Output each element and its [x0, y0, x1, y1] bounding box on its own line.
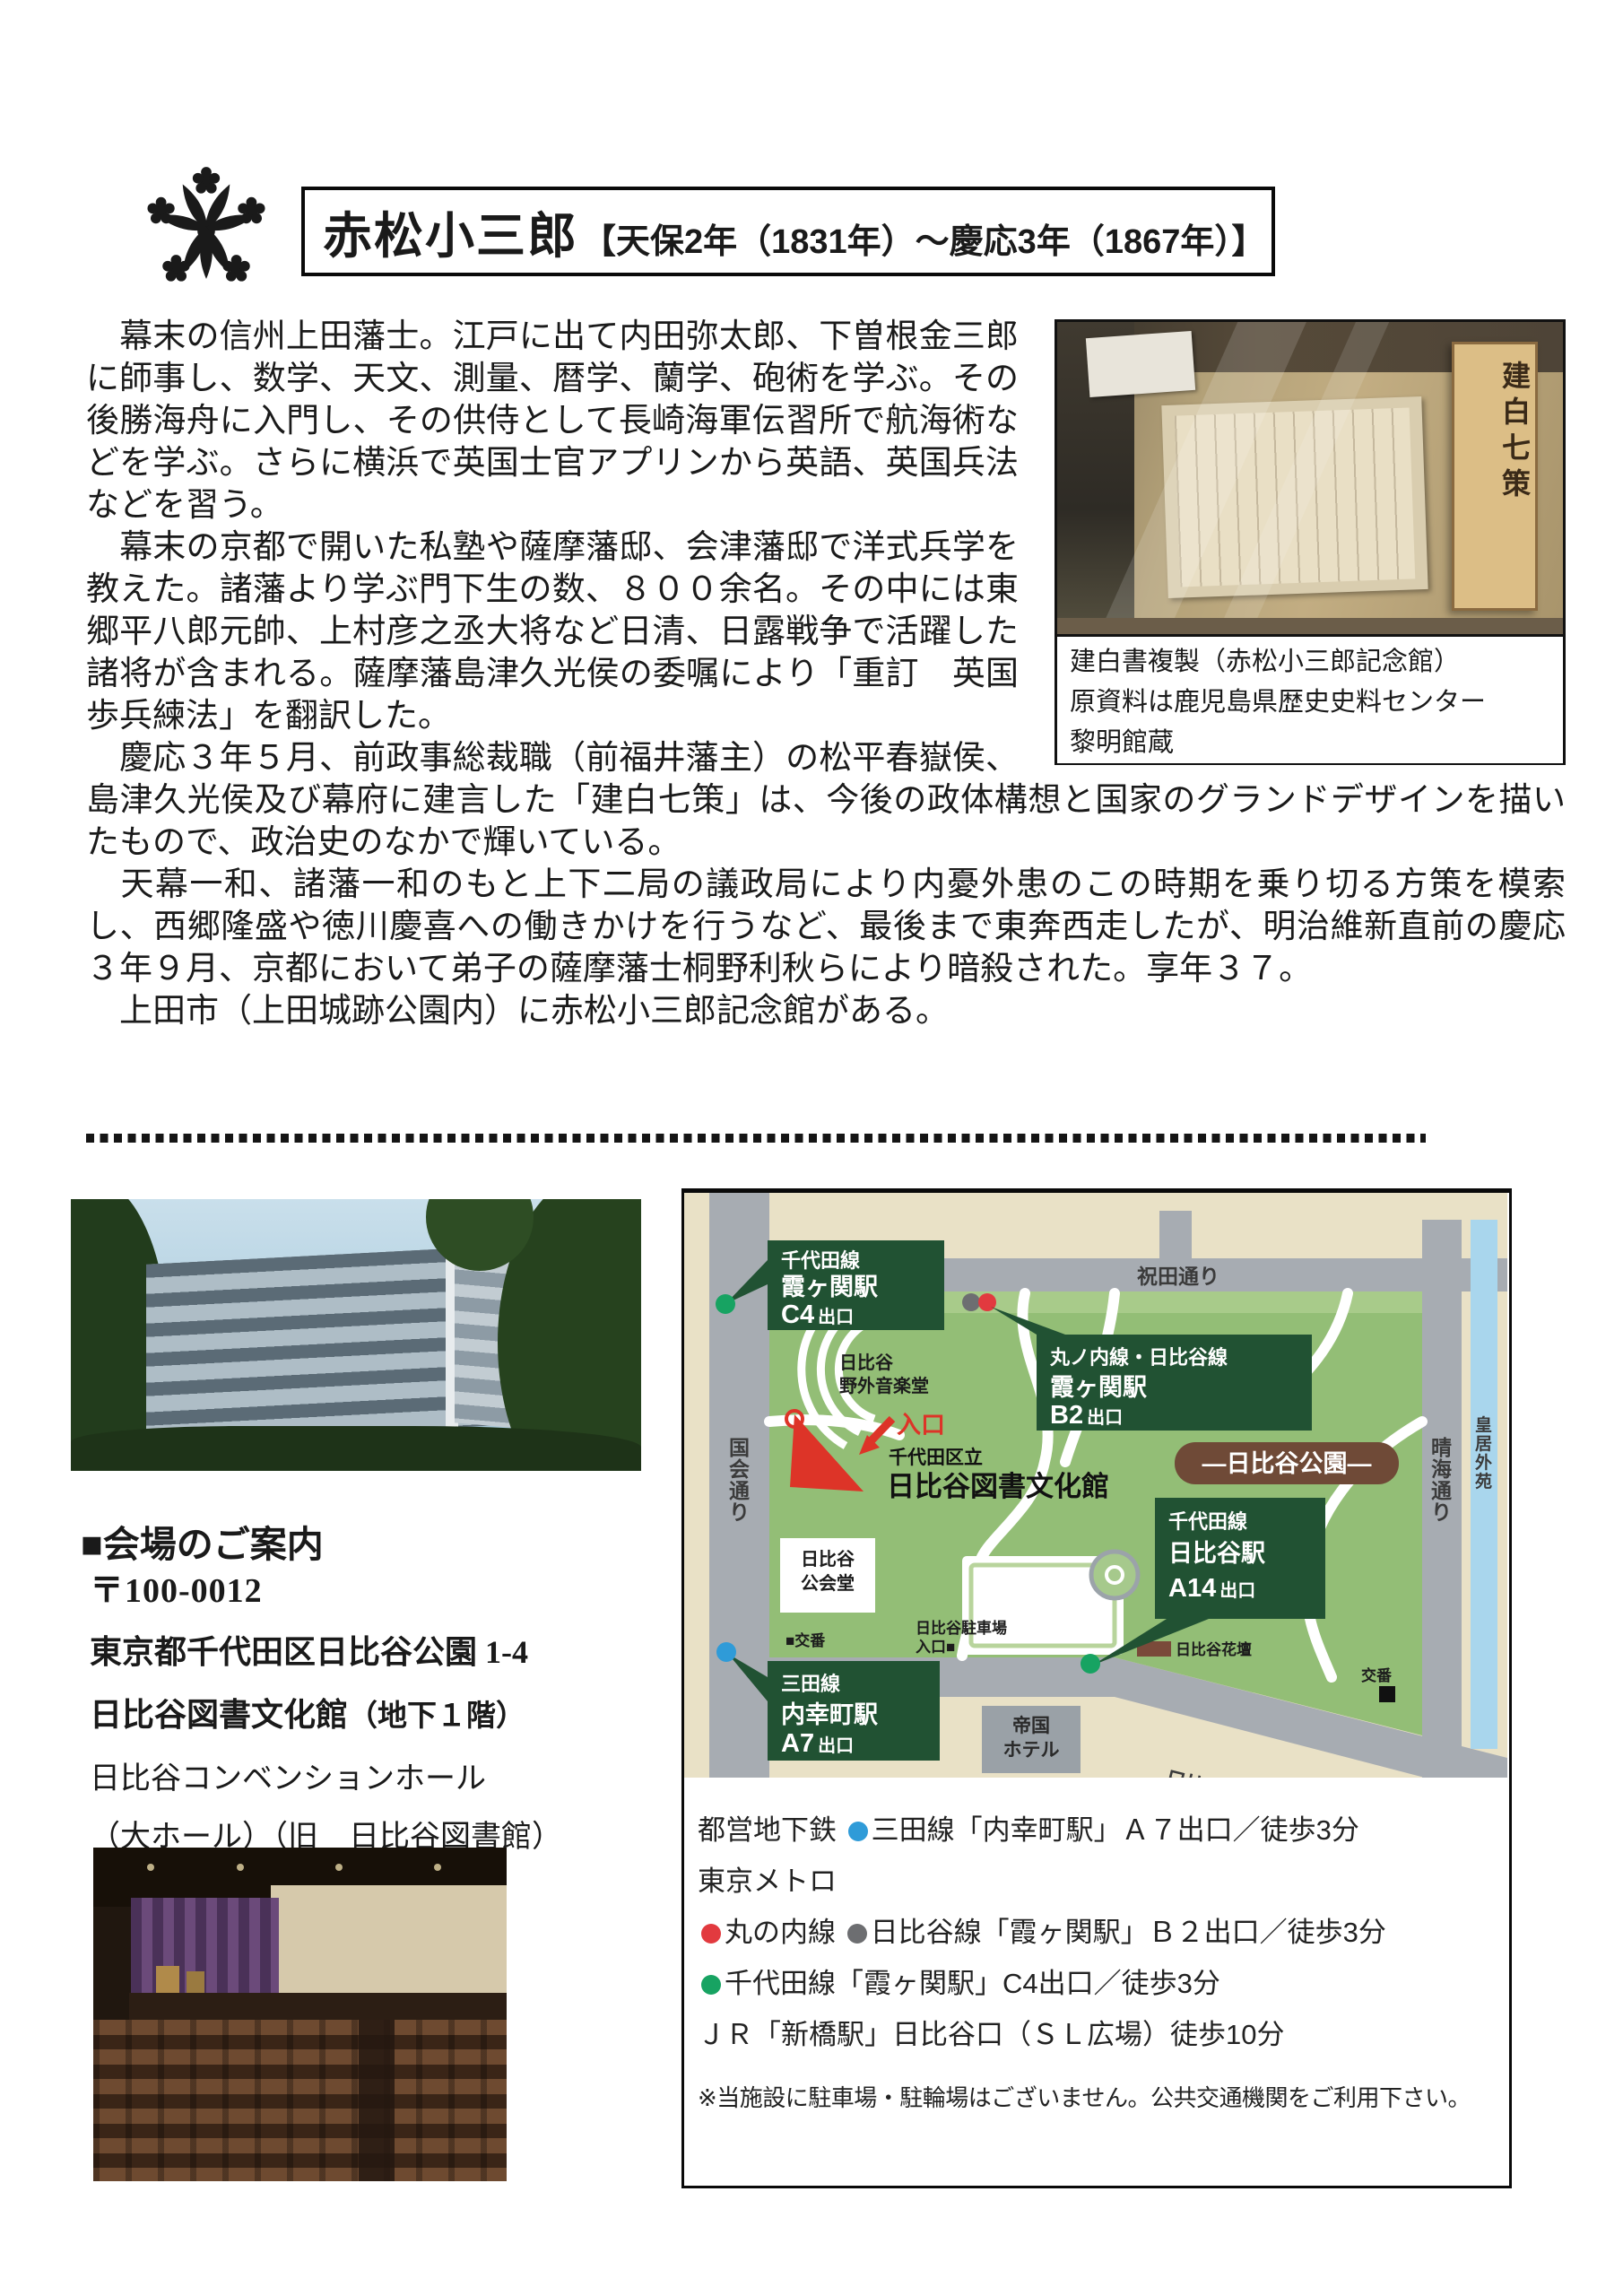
case-ledge	[1057, 618, 1563, 634]
hibiya-line-marker	[962, 1293, 980, 1311]
caption-line: 建白書複製（赤松小三郎記念館）	[1070, 642, 1563, 683]
access-text: 都営地下鉄	[698, 1814, 845, 1846]
library-muni-label: 千代田区立	[889, 1447, 983, 1468]
koban-square-icon	[1379, 1686, 1395, 1702]
access-row: 東京メトロ	[698, 1856, 1497, 1907]
station-label-uchisaiwaicho-a7: 三田線 内幸町駅 A7出口	[768, 1661, 940, 1761]
access-row: ＪＲ「新橋駅」日比谷口（ＳＬ広場）徒歩10分	[698, 2009, 1497, 2060]
title-dates: 【天保2年（1831年）～慶応3年（1867年）】	[582, 213, 1265, 263]
kamon-flower-crest-icon	[143, 161, 269, 296]
kadan-label: 日比谷花壇	[1176, 1640, 1252, 1658]
stage-back-wall	[271, 1885, 507, 2004]
access-row: 千代田線「霞ヶ関駅」C4出口／徒歩3分	[698, 1958, 1497, 2009]
venue-building-name: 日比谷図書文化館	[90, 1697, 348, 1733]
koban-right-label: 交番	[1361, 1666, 1393, 1684]
stage-curtain	[131, 1898, 279, 1998]
street-label-north: 祝田通り	[1137, 1265, 1219, 1288]
plank-title-text: 建白七策	[1454, 361, 1535, 504]
access-row: 丸の内線 日比谷線「霞ヶ関駅」Ｂ２出口／徒歩3分	[698, 1907, 1497, 1958]
parking-label: 日比谷駐車場	[916, 1619, 1007, 1637]
a14-exit-marker	[1081, 1654, 1100, 1674]
access-text: ＪＲ「新橋駅」日比谷口（ＳＬ広場）徒歩10分	[698, 2019, 1284, 2050]
palace-garden-label: 皇居外苑	[1475, 1414, 1492, 1492]
c4-exit-marker	[716, 1294, 735, 1314]
center-aisle	[359, 2020, 395, 2181]
hibiya-park-map: 日比谷 公会堂 入口 千代田区立 日比谷図書文化館 日比谷 野外音楽堂 ―日比谷…	[684, 1193, 1507, 1778]
svg-text:内幸町駅: 内幸町駅	[781, 1701, 878, 1728]
street-label-west: 国会通り	[729, 1436, 750, 1524]
svg-text:霞ヶ関駅: 霞ヶ関駅	[781, 1274, 878, 1300]
venue-address: 東京都千代田区日比谷公園 1-4	[90, 1626, 664, 1673]
dotted-divider	[86, 1134, 1426, 1143]
line-color-dot-icon	[848, 1822, 868, 1841]
ceiling-light	[237, 1864, 244, 1871]
library-name-label: 日比谷図書文化館	[887, 1471, 1109, 1502]
access-text: 千代田線「霞ヶ関駅」C4出口／徒歩3分	[725, 1968, 1220, 1999]
a7-exit-marker	[716, 1642, 736, 1662]
caption-line: 黎明館蔵	[1070, 723, 1563, 763]
side-road-stub	[1159, 1211, 1192, 1258]
svg-text:日比谷駅: 日比谷駅	[1168, 1540, 1265, 1567]
access-text: 東京メトロ	[698, 1865, 837, 1897]
marunouchi-line-marker	[978, 1293, 996, 1311]
access-map-box: 日比谷 公会堂 入口 千代田区立 日比谷図書文化館 日比谷 野外音楽堂 ―日比谷…	[681, 1188, 1512, 2188]
imperial-hotel-label: ホテル	[1003, 1740, 1060, 1761]
venue-guide-heading: ■会場のご案内	[81, 1514, 324, 1568]
access-rows: 都営地下鉄 三田線「内幸町駅」Ａ７出口／徒歩3分東京メトロ丸の内線 日比谷線「霞…	[698, 1805, 1497, 2060]
line-color-dot-icon	[847, 1924, 867, 1944]
station-label-kasumigaseki-c4: 千代田線 霞ヶ関駅 C4出口	[768, 1240, 944, 1330]
artifact-figure: 建白七策 建白書複製（赤松小三郎記念館） 原資料は鹿児島県歴史史料センター 黎明…	[1055, 319, 1566, 765]
title-box: 赤松小三郎【天保2年（1831年）～慶応3年（1867年）】	[301, 187, 1275, 276]
svg-text:霞ヶ関駅: 霞ヶ関駅	[1050, 1374, 1147, 1401]
street-label-east: 晴海通り	[1431, 1436, 1452, 1524]
ceiling-light	[335, 1864, 343, 1871]
fountain-icon	[1091, 1552, 1138, 1598]
seat-rows-texture	[93, 2020, 507, 2181]
svg-text:三田線: 三田線	[781, 1673, 840, 1695]
biography-text: 建白七策 建白書複製（赤松小三郎記念館） 原資料は鹿児島県歴史史料センター 黎明…	[86, 316, 1566, 1032]
petition-document-photo: 建白七策	[1057, 322, 1563, 634]
foreground-bushes	[71, 1426, 641, 1471]
ceiling-light	[434, 1864, 441, 1871]
access-row: 都営地下鉄 三田線「内幸町駅」Ａ７出口／徒歩3分	[698, 1805, 1497, 1856]
library-building-photo	[71, 1199, 641, 1471]
entrance-label: 入口	[897, 1412, 945, 1439]
access-text: 丸の内線	[725, 1917, 844, 1948]
venue-floor-note: （地下１階）	[348, 1699, 525, 1732]
flyer-page: 赤松小三郎【天保2年（1831年）～慶応3年（1867年）】 建白七策 建白書複…	[0, 0, 1623, 2296]
bio-paragraph: 上田市（上田城跡公園内）に赤松小三郎記念館がある。	[86, 990, 1566, 1032]
convention-hall-photo	[93, 1848, 507, 2181]
koban-left-label: ■交番	[785, 1631, 826, 1649]
artifact-caption: 建白書複製（赤松小三郎記念館） 原資料は鹿児島県歴史史料センター 黎明館蔵	[1057, 634, 1563, 763]
ongakudo-label: 野外音楽堂	[839, 1375, 929, 1396]
stage-front	[129, 1993, 507, 2023]
ceiling-light	[147, 1864, 154, 1871]
ongakudo-label: 日比谷	[839, 1352, 894, 1373]
access-text: 三田線「内幸町駅」Ａ７出口／徒歩3分	[872, 1814, 1359, 1846]
svg-text:千代田線: 千代田線	[781, 1249, 860, 1272]
line-color-dot-icon	[701, 1975, 721, 1995]
venue-hall-name: 日比谷コンベンションホール	[90, 1753, 664, 1797]
parking-label: 入口■	[916, 1639, 955, 1656]
paper-envelope	[1086, 331, 1195, 397]
parking-note: ※当施設に駐車場・駐輪場はございません。公共交通機関をご利用下さい。	[698, 2073, 1497, 2124]
svg-text:千代田線: 千代田線	[1168, 1510, 1247, 1533]
venue-building: 日比谷図書文化館（地下１階）	[90, 1689, 664, 1735]
svg-text:丸ノ内線・日比谷線: 丸ノ内線・日比谷線	[1049, 1346, 1228, 1369]
station-label-kasumigaseki-b2: 丸ノ内線・日比谷線 霞ヶ関駅 B2出口	[1037, 1335, 1312, 1431]
station-label-hibiya-a14: 千代田線 日比谷駅 A14出口	[1155, 1498, 1325, 1619]
caption-line: 原資料は鹿児島県歴史史料センター	[1070, 683, 1563, 723]
venue-address-block: 〒100-0012 東京都千代田区日比谷公園 1-4 日比谷図書文化館（地下１階…	[90, 1562, 664, 1856]
kokaido-label: 公会堂	[801, 1572, 855, 1594]
bio-paragraph: 天幕一和、諸藩一和のもと上下二局の議政局により内憂外患のこの時期を乗り切る方策を…	[86, 864, 1566, 990]
access-legend: 都営地下鉄 三田線「内幸町駅」Ａ７出口／徒歩3分東京メトロ丸の内線 日比谷線「霞…	[684, 1778, 1509, 2124]
postal-code: 〒100-0012	[90, 1562, 664, 1612]
kokaido-label: 日比谷	[801, 1549, 855, 1570]
page-title: 赤松小三郎	[323, 196, 578, 267]
access-text: 日比谷線「霞ヶ関駅」Ｂ２出口／徒歩3分	[871, 1917, 1386, 1948]
imperial-hotel-label: 帝国	[1012, 1715, 1050, 1736]
wooden-scroll-plank: 建白七策	[1452, 342, 1538, 611]
line-color-dot-icon	[701, 1924, 721, 1944]
park-name-label: ―日比谷公園―	[1202, 1450, 1372, 1477]
